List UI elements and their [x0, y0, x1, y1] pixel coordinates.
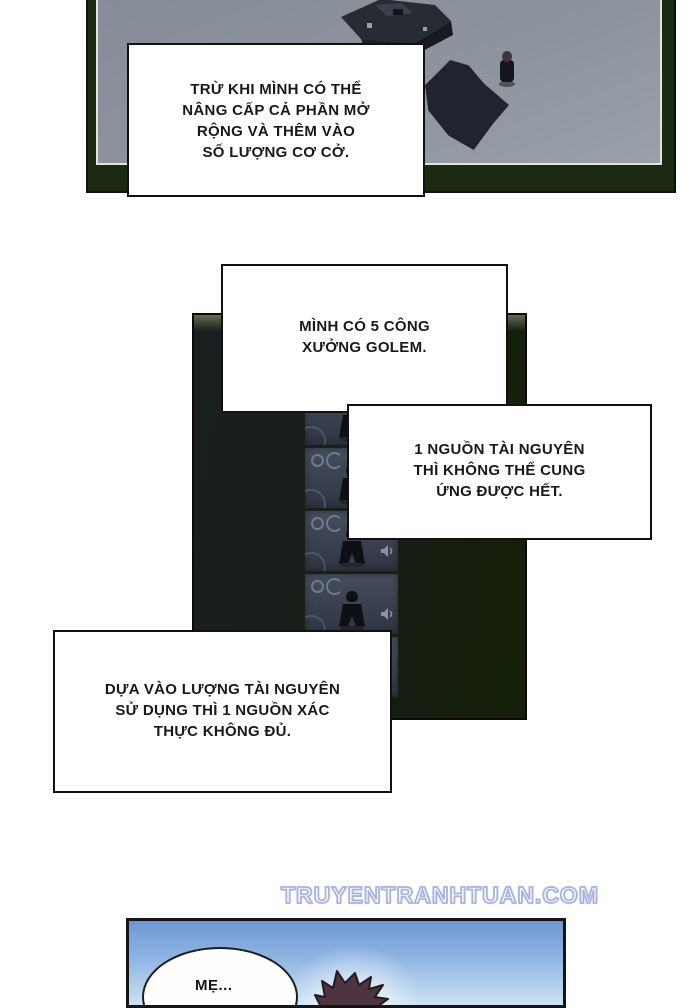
speech-line: RỘNG VÀ THÊM VÀO — [129, 121, 423, 142]
speech-line: THỰC KHÔNG ĐỦ. — [55, 721, 390, 742]
speech-box: DỰA VÀO LƯỢNG TÀI NGUYÊN SỬ DỤNG THÌ 1 N… — [53, 630, 392, 793]
character-hair — [313, 969, 391, 1008]
speech-line: TRỪ KHI MÌNH CÓ THỂ — [129, 79, 423, 100]
speech-line: NÂNG CẤP CẢ PHẦN MỞ — [129, 100, 423, 121]
speech-box: TRỪ KHI MÌNH CÓ THỂ NÂNG CẤP CẢ PHẦN MỞ … — [127, 43, 425, 197]
speech-line: 1 NGUỒN TÀI NGUYÊN — [349, 439, 650, 460]
speech-line: SỐ LƯỢNG CƠ CỞ. — [129, 142, 423, 163]
ring-icon — [311, 517, 324, 530]
ring-icon — [305, 552, 326, 571]
ring-icon — [311, 454, 324, 467]
bubble-text: MẸ... — [195, 977, 233, 994]
ring-icon — [305, 489, 326, 508]
watermark-text: TRUYENTRANHTUAN.COM — [280, 882, 600, 909]
speech-box: MÌNH CÓ 5 CÔNG XƯỞNG GOLEM. — [221, 264, 508, 413]
speech-line: DỰA VÀO LƯỢNG TÀI NGUYÊN — [55, 679, 390, 700]
speech-line: SỬ DỤNG THÌ 1 NGUỒN XÁC — [55, 700, 390, 721]
speech-line: THÌ KHÔNG THỂ CUNG — [349, 460, 650, 481]
ring-icon — [305, 426, 326, 445]
speaker-icon — [380, 544, 396, 558]
speaker-icon — [380, 607, 396, 621]
speech-line: XƯỞNG GOLEM. — [223, 337, 506, 358]
ring-icon — [311, 580, 324, 593]
speech-line: ỨNG ĐƯỢC HẾT. — [349, 481, 650, 502]
player-character — [497, 51, 517, 91]
bottom-scene-panel: MẸ... — [126, 918, 566, 1008]
golem-figure-icon — [338, 589, 366, 631]
speech-line: MÌNH CÓ 5 CÔNG — [223, 316, 506, 337]
speech-box: 1 NGUỒN TÀI NGUYÊN THÌ KHÔNG THỂ CUNG ỨN… — [347, 404, 652, 540]
golem-slot-tile — [305, 574, 398, 634]
